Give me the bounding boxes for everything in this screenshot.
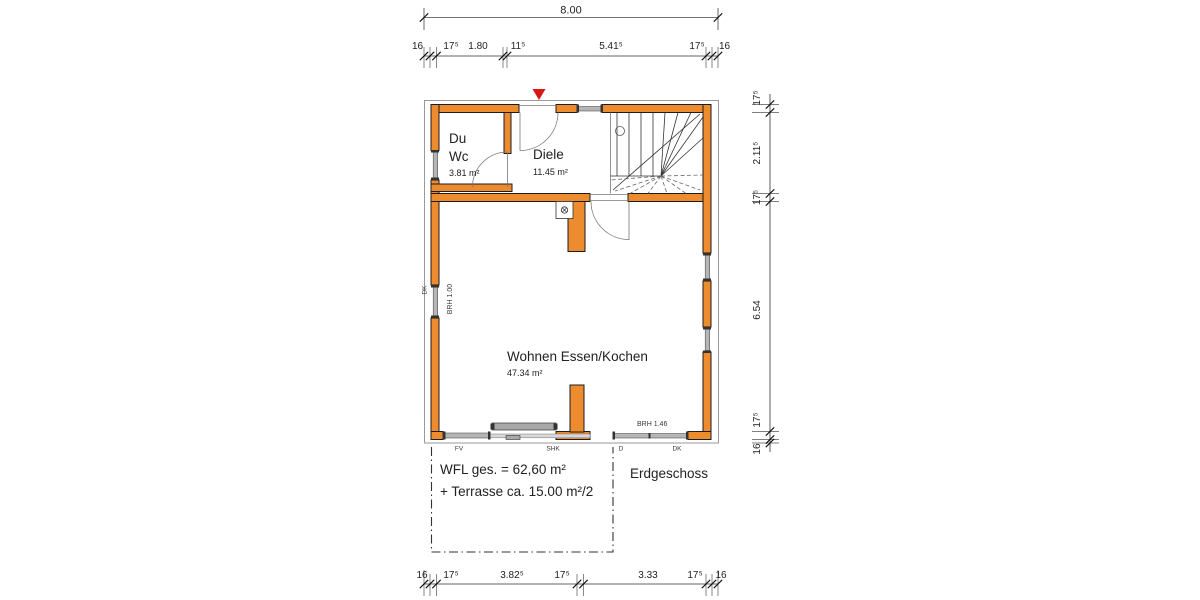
- room-wohnen-name: Wohnen Essen/Kochen: [507, 349, 648, 364]
- wall-bottom-right: [688, 432, 711, 440]
- floor-label: Erdgeschoss: [630, 466, 708, 481]
- dimension-top-total: 8.00: [420, 5, 722, 31]
- wall-bottom-left: [431, 432, 443, 440]
- room-duwc-name-1: Du: [449, 131, 466, 146]
- walls: [431, 105, 711, 440]
- wall-duwc-right: [504, 113, 511, 154]
- wall-top-right: [602, 105, 711, 113]
- window-right-1: [703, 253, 711, 281]
- window-top: [577, 105, 604, 113]
- room-duwc-area: 3.81 m²: [449, 168, 480, 178]
- label-opening-d: D: [619, 446, 624, 453]
- wall-stub-bottom: [570, 385, 584, 432]
- summary-terrasse: + Terrasse ca. 15.00 m²/2: [440, 484, 593, 499]
- room-duwc-name-2: Wc: [449, 149, 469, 164]
- wall-right-2: [703, 281, 711, 327]
- dim-right-4: 17⁵: [752, 412, 763, 427]
- room-labels: Du Wc 3.81 m² Diele 11.45 m² Wohnen Esse…: [449, 131, 648, 378]
- label-opening-fv: FV: [455, 446, 464, 453]
- dim-bottom-1: 17⁵: [443, 570, 458, 581]
- dimension-right-chain: 17⁵ 2.11⁵ 17⁵ 6.54 17⁵ 16: [752, 90, 779, 454]
- dim-right-3: 6.54: [752, 300, 763, 320]
- summary-block: WFL ges. = 62,60 m² + Terrasse ca. 15.00…: [440, 462, 708, 499]
- wall-wohnen-north-left: [431, 194, 590, 202]
- window-duwc-left: [431, 150, 439, 180]
- label-opening-dk: DK: [672, 446, 682, 453]
- dim-top-6: 16: [719, 41, 731, 52]
- floor-plan-sheet: 8.00 16 17⁵ 1.80 11⁵ 5.41⁵ 17⁵ 16 17⁵: [0, 0, 1200, 600]
- dim-bottom-0: 16: [416, 570, 428, 581]
- wall-right-3: [703, 352, 711, 440]
- dimension-top-chain: 16 17⁵ 1.80 11⁵ 5.41⁵ 17⁵ 16: [412, 41, 731, 68]
- dim-top-5: 17⁵: [689, 41, 704, 52]
- room-diele-area: 11.45 m²: [533, 167, 568, 177]
- dim-right-5: 16: [752, 443, 763, 455]
- window-wohnen-left: [431, 285, 439, 318]
- dim-bottom-4: 3.33: [638, 570, 658, 581]
- dim-top-1: 17⁵: [443, 41, 458, 52]
- dim-top-0: 16: [412, 41, 424, 52]
- dim-bottom-2: 3.82⁵: [500, 570, 524, 581]
- dim-top-2: 1.80: [468, 41, 488, 52]
- stairs-upper-flight-dashed: [611, 175, 704, 194]
- dim-top-4: 5.41⁵: [599, 41, 623, 52]
- wall-wohnen-north-right: [628, 194, 703, 202]
- wall-left-3: [431, 318, 439, 440]
- window-bottom-d-dk: [613, 432, 689, 440]
- dim-right-1: 2.11⁵: [752, 142, 763, 165]
- dim-right-2: 17⁵: [752, 190, 763, 205]
- room-diele-name: Diele: [533, 147, 564, 162]
- label-opening-shk: SHK: [546, 446, 560, 453]
- floor-plan-drawing: 8.00 16 17⁵ 1.80 11⁵ 5.41⁵ 17⁵ 16 17⁵: [0, 0, 1200, 600]
- dim-top-3: 11⁵: [511, 41, 526, 52]
- wohnen-door-swing: [591, 202, 629, 240]
- wall-left-1: [431, 105, 439, 151]
- wall-top-pier: [556, 105, 577, 113]
- stairs: [611, 113, 704, 194]
- summary-wfl: WFL ges. = 62,60 m²: [440, 462, 566, 477]
- dim-bottom-6: 16: [715, 570, 727, 581]
- dim-right-0: 17⁵: [752, 90, 763, 105]
- entrance-door-swing: [520, 113, 558, 151]
- wall-duwc-bottom: [431, 184, 512, 192]
- window-right-2: [703, 327, 711, 353]
- entrance-arrow-icon: [533, 89, 546, 100]
- wall-right-1: [703, 105, 711, 254]
- dim-bottom-3: 17⁵: [554, 570, 569, 581]
- dimension-bottom-chain: 16 17⁵ 3.82⁵ 17⁵ 3.33 17⁵ 16: [416, 570, 727, 596]
- dim-total-width: 8.00: [560, 5, 581, 17]
- label-brh-door: BRH 1.46: [637, 421, 667, 428]
- room-wohnen-area: 47.34 m²: [507, 368, 543, 378]
- shaft-symbol: [556, 202, 573, 219]
- label-dk-left: DK: [422, 285, 429, 295]
- dim-bottom-5: 17⁵: [687, 570, 702, 581]
- label-brh-window: BRH 1.00: [447, 284, 454, 314]
- wall-top-left: [431, 105, 519, 113]
